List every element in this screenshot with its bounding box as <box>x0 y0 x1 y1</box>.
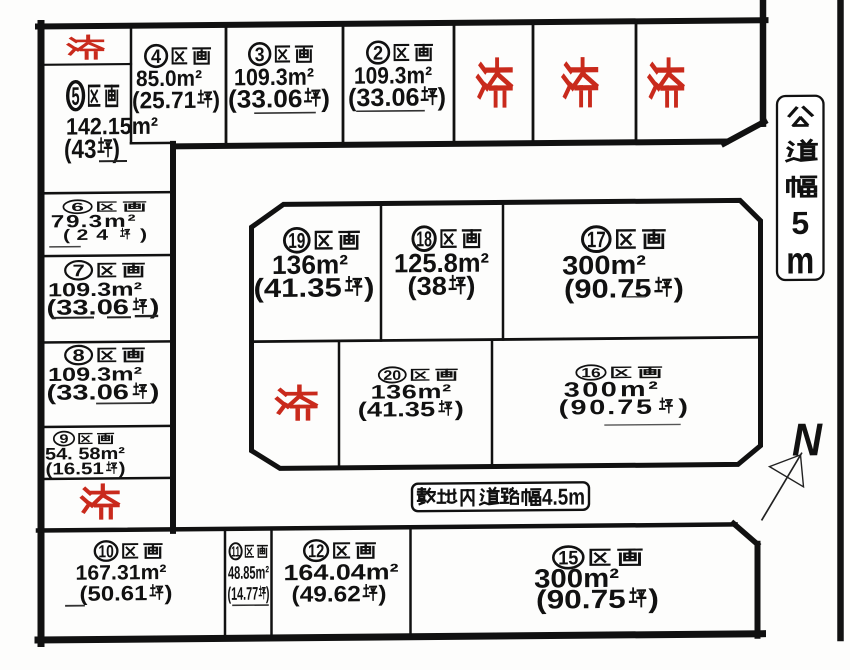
svg-text:0: 0 <box>101 582 114 605</box>
svg-text:(: ( <box>536 586 547 615</box>
svg-text:8: 8 <box>72 346 84 365</box>
svg-text:9: 9 <box>570 396 586 419</box>
svg-text:1: 1 <box>231 584 237 605</box>
svg-text:0: 0 <box>591 275 608 305</box>
svg-text:²: ² <box>390 560 399 584</box>
svg-text:20: 20 <box>383 368 401 383</box>
svg-text:5: 5 <box>249 563 255 584</box>
svg-text:²: ² <box>425 62 432 89</box>
svg-text:4.5m: 4.5m <box>542 483 585 509</box>
svg-text:0: 0 <box>97 296 113 320</box>
svg-text:4: 4 <box>300 582 314 607</box>
svg-text:1: 1 <box>52 459 63 478</box>
svg-text:): ) <box>466 271 475 300</box>
svg-text:3: 3 <box>307 274 324 303</box>
svg-text:m: m <box>132 113 151 139</box>
svg-text:²: ² <box>134 279 142 300</box>
svg-text:1: 1 <box>382 398 397 421</box>
svg-text:6: 6 <box>288 86 303 114</box>
svg-text:3: 3 <box>56 381 72 405</box>
svg-text:8: 8 <box>243 563 249 584</box>
svg-text:5: 5 <box>791 205 809 241</box>
svg-text:): ) <box>266 584 270 605</box>
svg-text:7: 7 <box>72 261 84 280</box>
svg-text:4: 4 <box>71 135 84 164</box>
svg-text:²: ² <box>134 363 142 384</box>
svg-text:): ) <box>140 225 147 242</box>
svg-text:3: 3 <box>405 398 420 421</box>
svg-text:.: . <box>266 86 273 113</box>
svg-text:3: 3 <box>356 84 370 112</box>
svg-text:1: 1 <box>394 248 408 279</box>
svg-text:2: 2 <box>76 226 88 244</box>
svg-text:2: 2 <box>373 43 383 65</box>
svg-text:3: 3 <box>56 296 72 320</box>
svg-text:): ) <box>438 83 446 111</box>
svg-text:.: . <box>299 274 308 303</box>
svg-text:0: 0 <box>97 381 113 405</box>
svg-text:m: m <box>256 563 266 584</box>
svg-text:10: 10 <box>98 541 114 561</box>
svg-text:(: ( <box>564 275 575 305</box>
svg-text:0: 0 <box>589 396 605 419</box>
svg-text:5: 5 <box>120 113 132 139</box>
svg-text:.: . <box>397 398 405 421</box>
svg-text:): ) <box>648 585 659 614</box>
svg-text:1: 1 <box>134 582 147 605</box>
svg-text:7: 7 <box>171 86 184 113</box>
svg-text:0: 0 <box>564 585 582 614</box>
svg-text:): ) <box>678 395 688 418</box>
svg-text:6: 6 <box>334 581 348 606</box>
svg-text:.: . <box>327 581 334 606</box>
svg-text:): ) <box>119 459 126 478</box>
svg-text:3: 3 <box>72 296 88 320</box>
svg-text:7: 7 <box>252 584 258 605</box>
svg-text:): ) <box>165 581 173 604</box>
svg-text:²: ² <box>481 247 490 278</box>
svg-text:1: 1 <box>281 274 298 303</box>
svg-text:1: 1 <box>92 459 103 478</box>
svg-text:(: ( <box>132 87 140 114</box>
svg-text:7: 7 <box>591 585 609 614</box>
svg-text:(: ( <box>291 582 299 607</box>
svg-text:8: 8 <box>432 271 447 300</box>
svg-text:6: 6 <box>406 84 420 112</box>
svg-text:m: m <box>786 240 814 282</box>
svg-text:): ) <box>212 86 220 113</box>
svg-text:(: ( <box>559 396 569 419</box>
svg-text:5: 5 <box>72 83 80 111</box>
svg-text:²: ² <box>127 212 135 231</box>
svg-text:.: . <box>165 87 171 114</box>
svg-text:6: 6 <box>113 296 129 320</box>
svg-text:6: 6 <box>121 582 134 605</box>
svg-text:5: 5 <box>636 395 652 418</box>
svg-text:2: 2 <box>140 87 153 114</box>
svg-text:): ) <box>674 274 684 304</box>
svg-text:(: ( <box>408 272 417 301</box>
svg-text:9: 9 <box>547 586 565 615</box>
svg-text:12: 12 <box>308 540 324 561</box>
svg-text:9: 9 <box>313 581 327 606</box>
svg-text:4: 4 <box>264 274 281 303</box>
svg-text:5: 5 <box>324 273 341 302</box>
svg-text:1: 1 <box>184 86 197 113</box>
svg-text:): ) <box>113 135 120 164</box>
svg-text:4: 4 <box>96 226 109 244</box>
svg-text:5: 5 <box>608 585 626 614</box>
svg-text:5: 5 <box>420 398 435 421</box>
svg-text:17: 17 <box>587 227 606 252</box>
svg-text:(: ( <box>63 226 71 243</box>
svg-text:7: 7 <box>617 274 634 304</box>
svg-text:N: N <box>792 413 823 465</box>
svg-text:²: ² <box>265 563 269 584</box>
svg-text:3: 3 <box>255 44 265 66</box>
svg-text:²: ² <box>307 64 315 90</box>
svg-text:6: 6 <box>64 459 75 478</box>
svg-text:7: 7 <box>617 396 633 419</box>
svg-text:): ) <box>150 380 160 404</box>
svg-text:.: . <box>609 274 618 304</box>
svg-text:9: 9 <box>574 275 591 305</box>
svg-text:.: . <box>607 396 615 419</box>
svg-text:6: 6 <box>113 381 129 405</box>
svg-text:5: 5 <box>81 459 92 478</box>
svg-text:.: . <box>88 296 96 320</box>
svg-text:): ) <box>364 273 374 302</box>
svg-text:²: ² <box>151 113 159 139</box>
svg-text:4: 4 <box>367 398 383 421</box>
svg-text:.: . <box>88 381 96 405</box>
svg-text:11: 11 <box>231 544 240 560</box>
svg-text:.: . <box>384 84 391 112</box>
svg-text:3: 3 <box>237 86 252 114</box>
svg-text:3: 3 <box>72 381 88 405</box>
svg-text:): ) <box>455 398 464 421</box>
svg-text:(: ( <box>254 274 265 303</box>
svg-text:): ) <box>321 85 330 112</box>
svg-text:2: 2 <box>347 581 361 606</box>
svg-text:.: . <box>102 113 108 139</box>
svg-text:3: 3 <box>84 135 96 164</box>
svg-text:7: 7 <box>246 584 252 605</box>
svg-text:3: 3 <box>417 271 432 300</box>
svg-text:): ) <box>378 581 386 606</box>
svg-text:²: ² <box>442 381 451 403</box>
svg-text:3: 3 <box>251 86 266 114</box>
svg-text:5: 5 <box>87 582 100 605</box>
svg-text:3: 3 <box>370 84 384 112</box>
svg-text:5: 5 <box>634 274 651 304</box>
svg-text:.: . <box>582 585 591 614</box>
svg-text:0: 0 <box>273 86 288 114</box>
svg-text:8: 8 <box>234 563 240 584</box>
svg-text:5: 5 <box>152 87 165 114</box>
svg-text:0: 0 <box>392 84 406 112</box>
